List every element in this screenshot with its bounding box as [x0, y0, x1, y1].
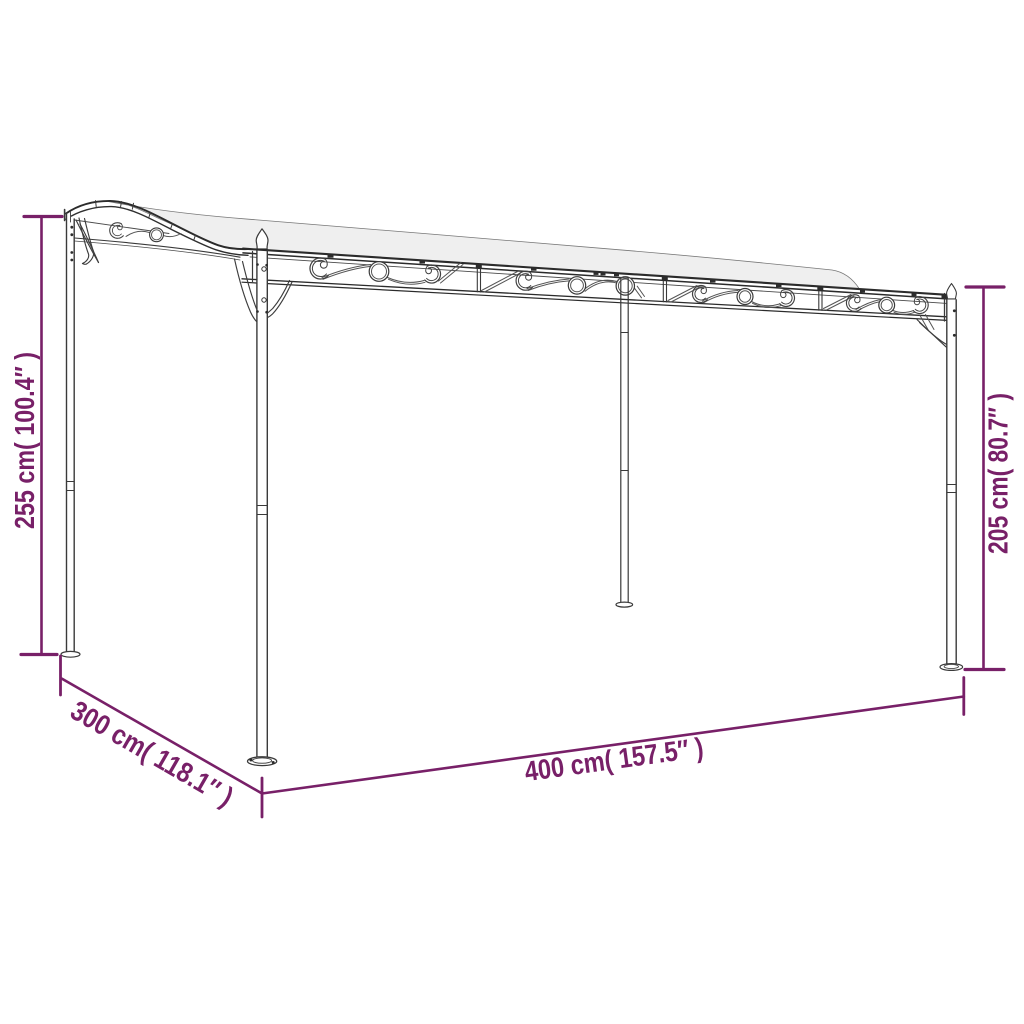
svg-text:300 cm( 118.1″ ): 300 cm( 118.1″ )	[65, 695, 238, 813]
svg-text:255 cm( 100.4″ ): 255 cm( 100.4″ )	[9, 352, 40, 529]
svg-text:400 cm( 157.5″ ): 400 cm( 157.5″ )	[523, 732, 706, 787]
svg-text:205 cm( 80.7″ ): 205 cm( 80.7″ )	[982, 393, 1013, 554]
